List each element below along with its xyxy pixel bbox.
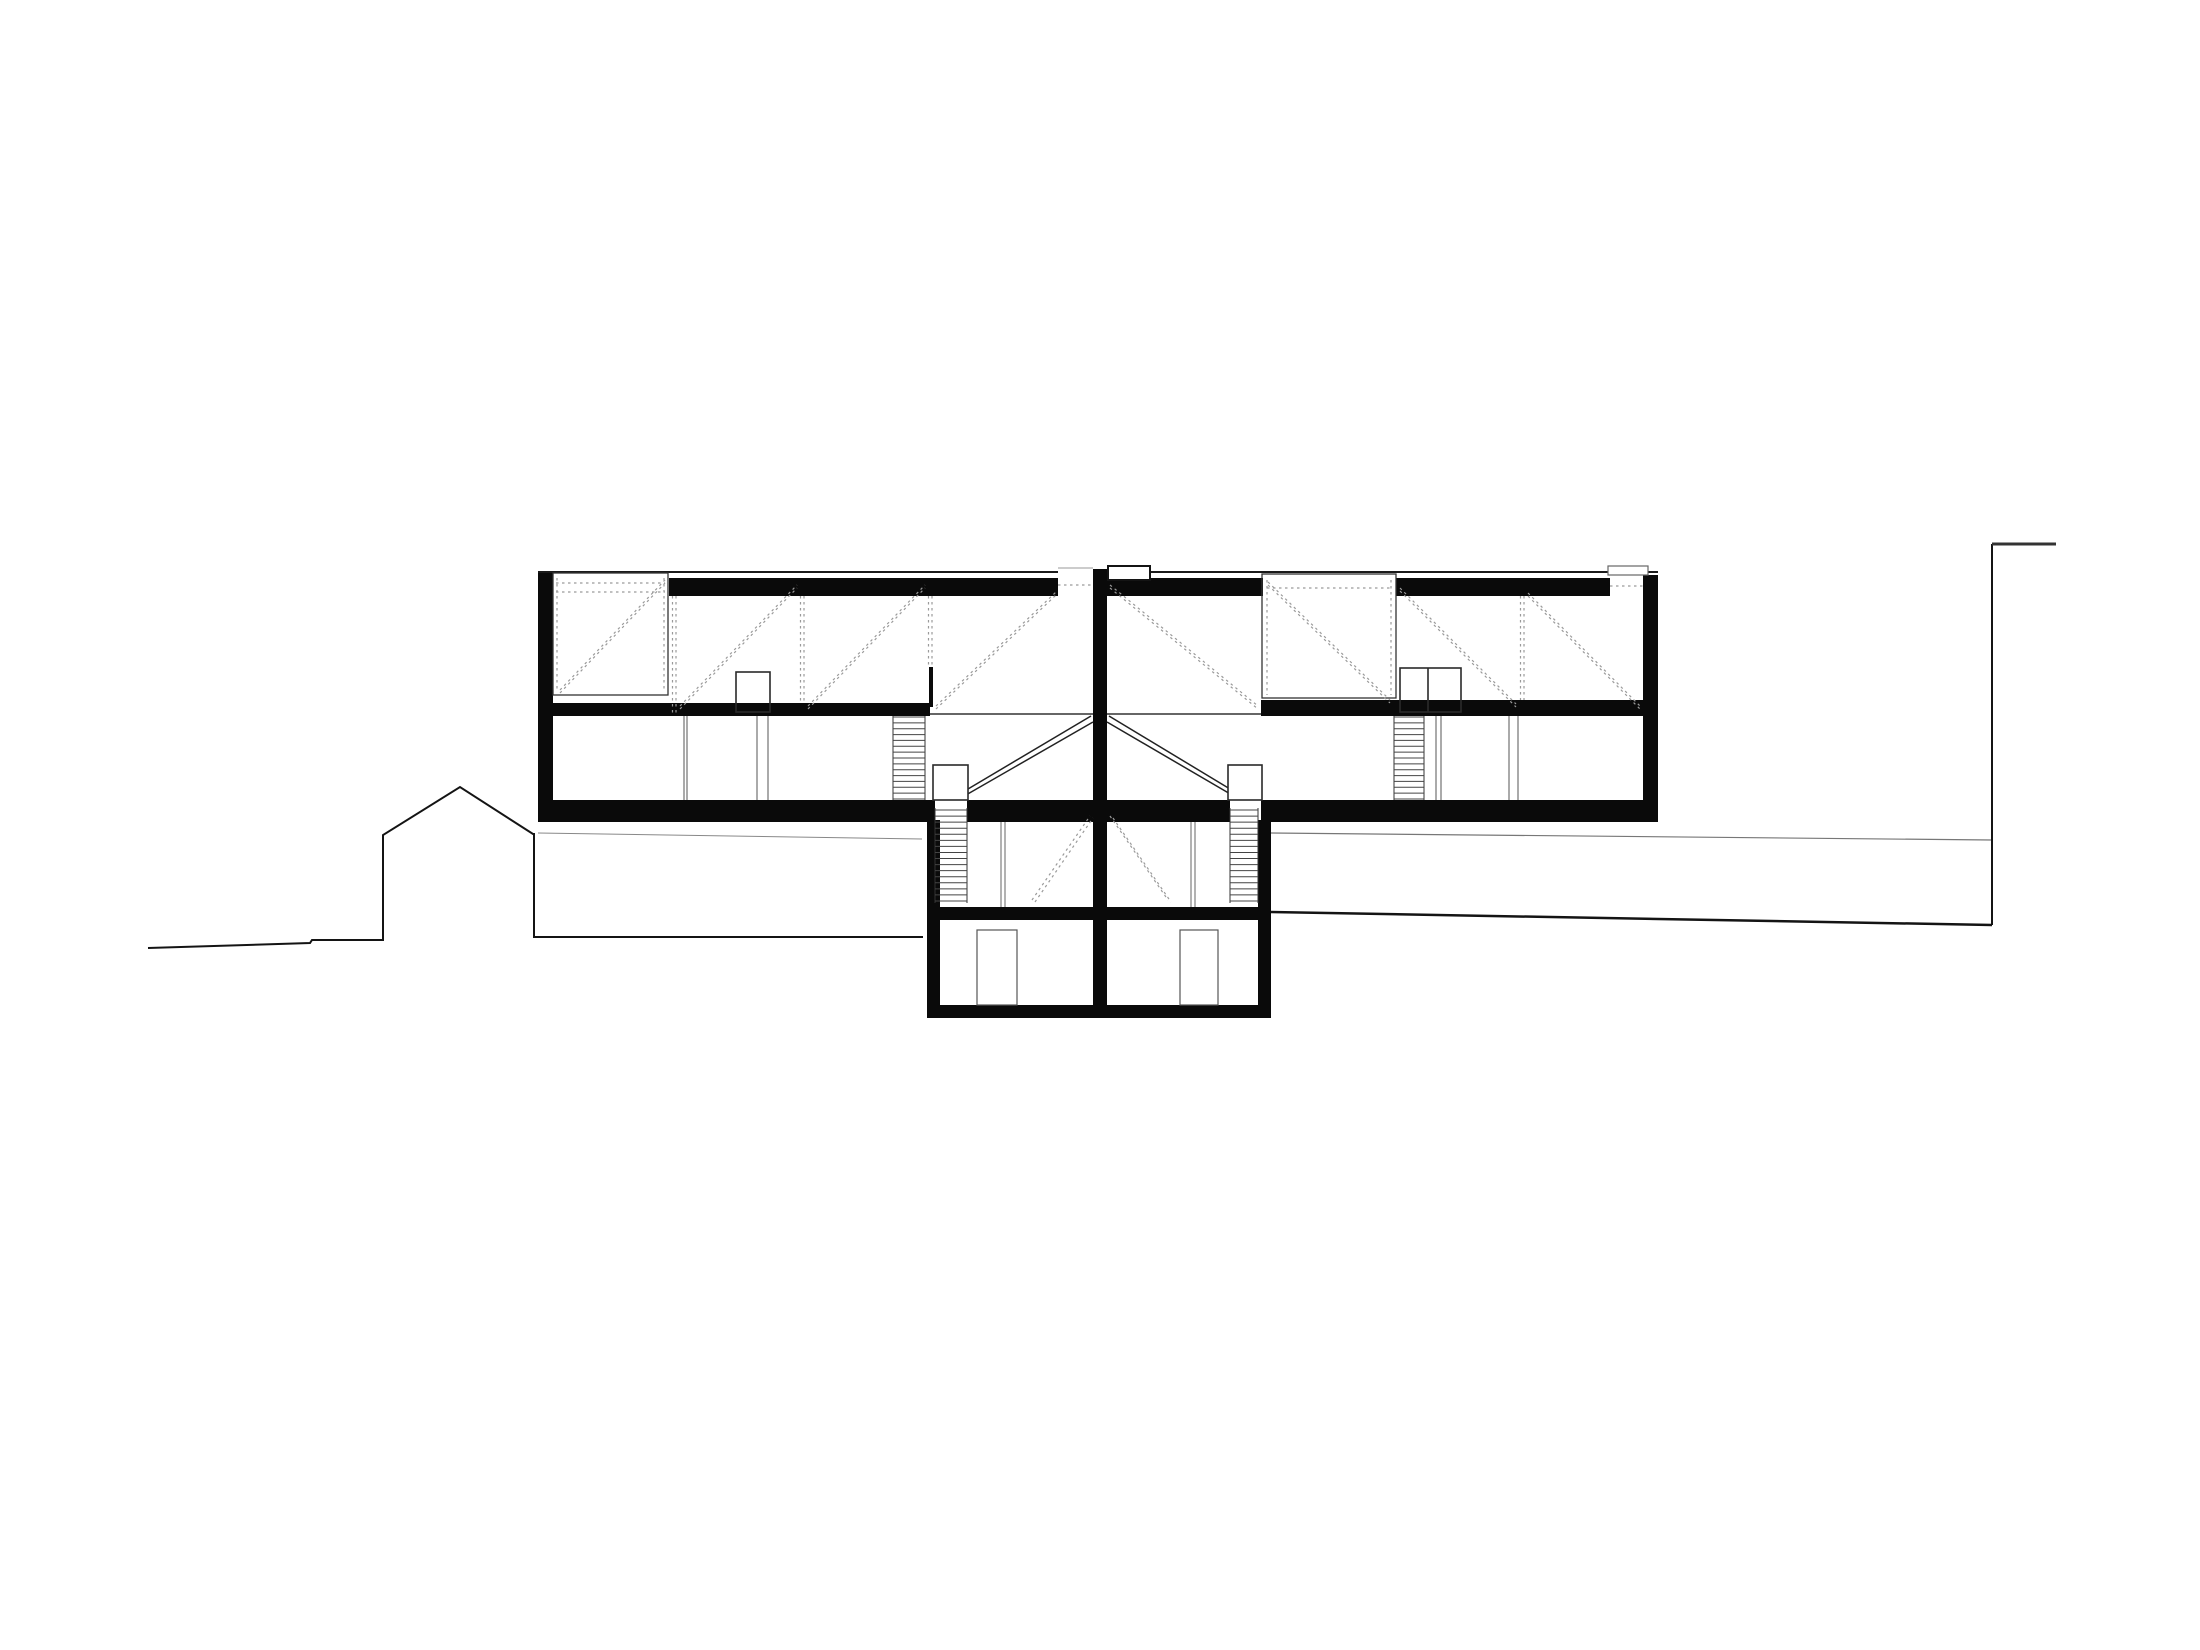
structure-shell-layer [538, 569, 1658, 1018]
drawing-sheet [0, 0, 2200, 1650]
architectural-section-canvas [0, 0, 2200, 1650]
